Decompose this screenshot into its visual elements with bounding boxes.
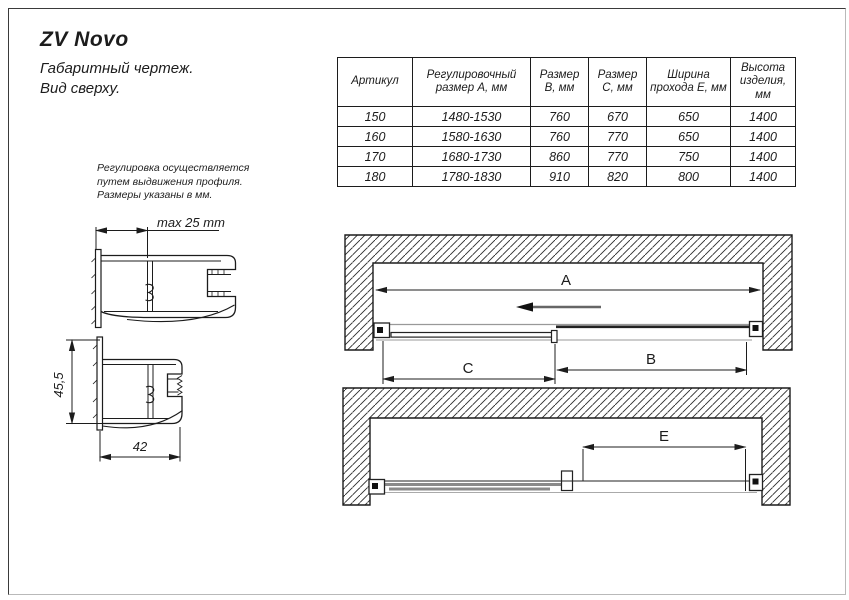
door-handle [562,471,573,491]
sliding-panel-end-stile [552,331,558,343]
wall-bracket-left [374,323,390,338]
profile-slot-lines [208,275,232,292]
profile-wall-flange [97,337,103,430]
profile-width-label: 42 [133,439,148,454]
profile-height-label: 45,5 [51,372,66,398]
top-view-closed-diagram: A B [345,235,792,384]
dimension-b-label: B [646,351,656,368]
profile-lip-curve [127,305,235,322]
profile-outer-contour [103,360,183,424]
drawing-sheet: ZV Novo Габаритный чертеж. Вид сверху. Р… [0,0,849,600]
profile-lip-curve [103,411,183,428]
max-extension-label: max 25 mm [157,215,225,230]
profile-slot-teeth [212,270,224,297]
profile-divider [148,365,153,419]
dimension-e [583,447,746,491]
profile-cross-section-side: 45,5 42 [51,337,183,462]
max-extension-dimension [96,227,219,258]
dimension-e-label: E [659,428,669,445]
profile-cross-section-top: max 25 mm [92,215,236,328]
wall-bracket-left [369,480,385,495]
sliding-panel [391,333,552,338]
top-view-open-diagram: E [343,388,790,505]
slide-direction-arrow [516,302,601,311]
profile-divider [148,261,153,312]
profile-height-dimension [66,340,104,424]
dimension-a-label: A [561,272,571,289]
dimension-c-label: C [463,360,474,377]
profile-wall-flange [96,250,102,328]
wall-bracket-right [750,475,763,491]
profile-slot-lines [168,379,179,392]
profile-outer-contour [101,256,236,318]
wall-bracket-right [750,322,763,337]
drawing-canvas: max 25 mm 45,5 [0,0,849,600]
